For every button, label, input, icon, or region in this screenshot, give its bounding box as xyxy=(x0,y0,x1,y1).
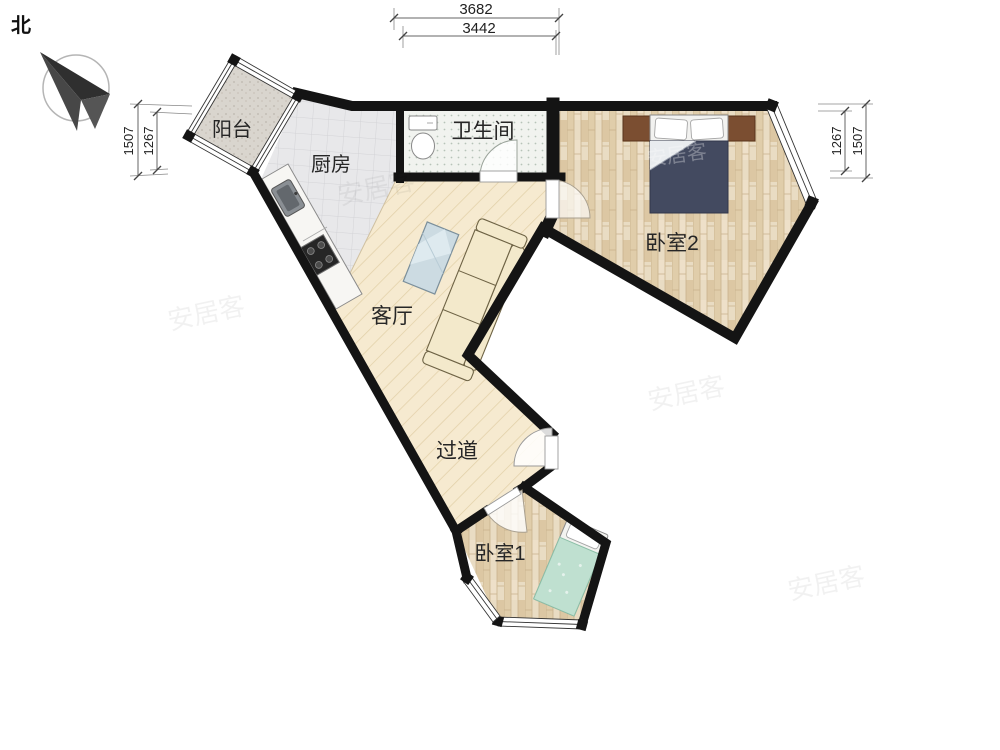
room-label-bathroom: 卫生间 xyxy=(452,120,515,143)
watermark-text: 安居客 xyxy=(785,560,868,606)
watermark-text: 安居客 xyxy=(165,290,248,336)
dimension-right: 1267 1507 xyxy=(818,100,873,182)
compass: 北 xyxy=(11,14,110,131)
floor-plan: 3682 3442 1507 1267 1267 1507 xyxy=(0,0,1000,750)
dim-left-outer: 1507 xyxy=(121,127,136,156)
dimension-left: 1507 1267 xyxy=(121,100,192,180)
floor-plan-page: 3682 3442 1507 1267 1267 1507 xyxy=(0,0,1000,750)
dim-right-outer: 1507 xyxy=(850,127,865,156)
nightstand-left xyxy=(623,116,650,141)
watermark-text: 安居客 xyxy=(645,370,728,416)
dim-right-inner: 1267 xyxy=(829,127,844,156)
room-label-balcony: 阳台 xyxy=(212,118,252,141)
room-label-hallway: 过道 xyxy=(436,440,478,463)
dim-top-outer: 3682 xyxy=(459,1,492,18)
room-label-bedroom1: 卧室1 xyxy=(474,542,525,565)
room-label-kitchen: 厨房 xyxy=(311,153,351,176)
north-arrow-icon xyxy=(40,52,110,100)
nightstand-right xyxy=(728,116,755,141)
room-label-bedroom2: 卧室2 xyxy=(645,232,699,255)
dim-top-inner: 3442 xyxy=(462,20,495,37)
north-label: 北 xyxy=(11,14,31,37)
dim-left-inner: 1267 xyxy=(141,127,156,156)
room-label-living: 客厅 xyxy=(371,305,413,328)
dimension-top: 3682 3442 xyxy=(390,1,563,55)
